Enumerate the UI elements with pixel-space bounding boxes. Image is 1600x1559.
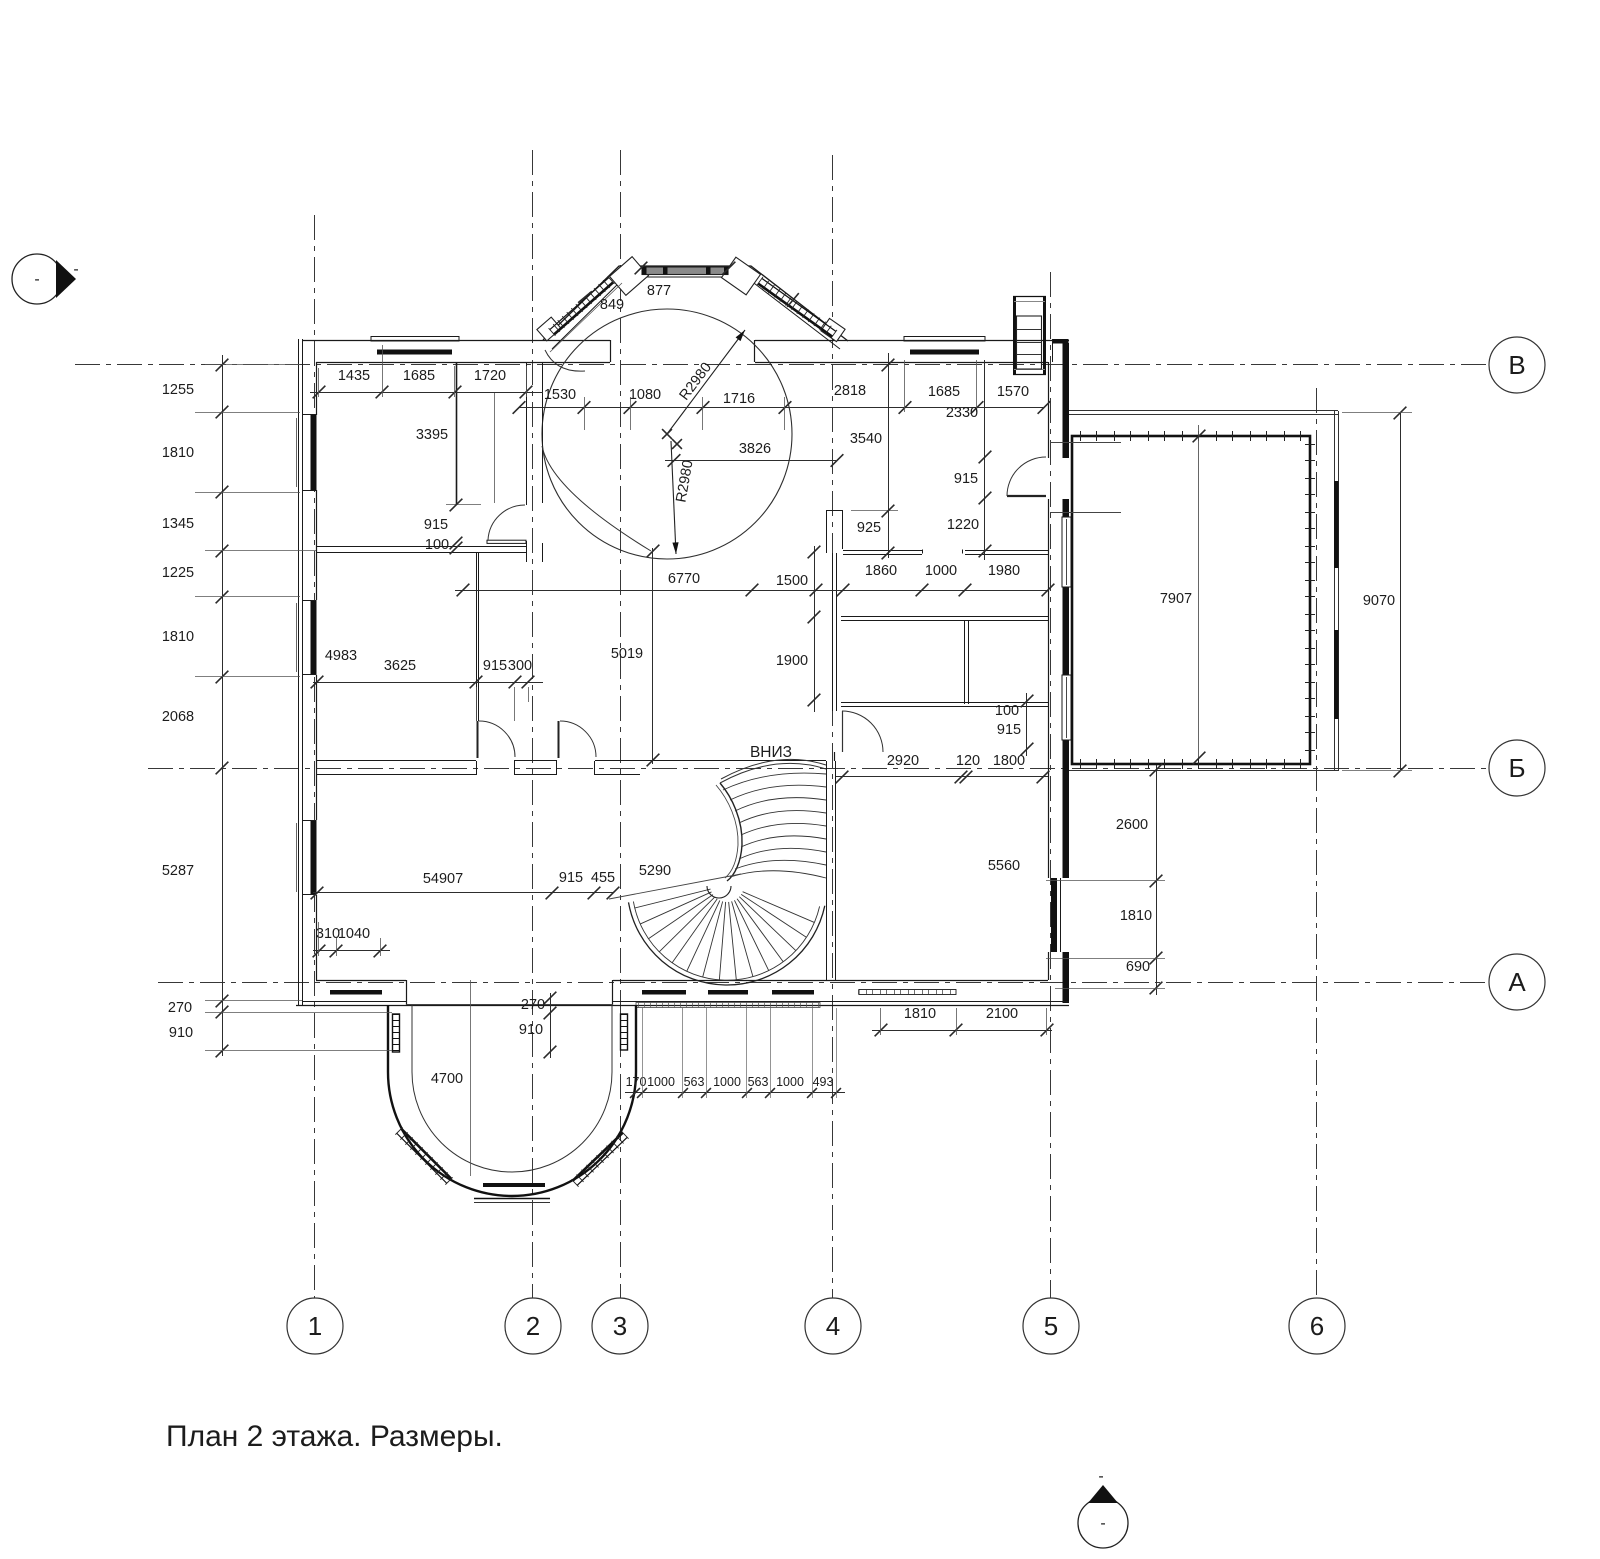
- svg-text:170: 170: [626, 1075, 647, 1089]
- svg-text:План 2 этажа. Размеры.: План 2 этажа. Размеры.: [166, 1420, 503, 1453]
- svg-text:849: 849: [600, 297, 624, 313]
- svg-text:1810: 1810: [1120, 908, 1152, 924]
- svg-text:1000: 1000: [925, 563, 957, 579]
- svg-text:1435: 1435: [338, 368, 370, 384]
- svg-text:1810: 1810: [162, 629, 194, 645]
- svg-text:5560: 5560: [988, 858, 1020, 874]
- svg-text:1: 1: [308, 1311, 322, 1341]
- svg-text:4983: 4983: [325, 648, 357, 664]
- svg-text:1810: 1810: [904, 1006, 936, 1022]
- svg-text:1080: 1080: [629, 387, 661, 403]
- svg-text:В: В: [1508, 350, 1525, 380]
- svg-text:3540: 3540: [850, 431, 882, 447]
- svg-text:5: 5: [1044, 1311, 1058, 1341]
- svg-text:100: 100: [995, 703, 1019, 719]
- svg-text:1000: 1000: [647, 1075, 675, 1089]
- svg-text:910: 910: [519, 1022, 543, 1038]
- svg-text:54907: 54907: [423, 871, 463, 887]
- svg-text:Б: Б: [1508, 753, 1525, 783]
- svg-text:А: А: [1508, 967, 1526, 997]
- svg-text:2920: 2920: [887, 753, 919, 769]
- svg-text:7907: 7907: [1160, 591, 1192, 607]
- svg-text:3826: 3826: [739, 441, 771, 457]
- svg-text:3: 3: [613, 1311, 627, 1341]
- svg-text:563: 563: [748, 1075, 769, 1089]
- svg-text:1860: 1860: [865, 563, 897, 579]
- svg-text:4700: 4700: [431, 1071, 463, 1087]
- svg-text:877: 877: [647, 283, 671, 299]
- svg-text:3625: 3625: [384, 658, 416, 674]
- svg-text:1716: 1716: [723, 391, 755, 407]
- svg-text:-: -: [1098, 1468, 1103, 1485]
- svg-text:1685: 1685: [928, 384, 960, 400]
- svg-text:1720: 1720: [474, 368, 506, 384]
- svg-text:5290: 5290: [639, 863, 671, 879]
- svg-text:3395: 3395: [416, 427, 448, 443]
- svg-text:915: 915: [954, 471, 978, 487]
- svg-text:563: 563: [684, 1075, 705, 1089]
- svg-text:1500: 1500: [776, 573, 808, 589]
- svg-text:915: 915: [424, 517, 448, 533]
- svg-text:-: -: [1100, 1515, 1105, 1532]
- svg-text:2068: 2068: [162, 709, 194, 725]
- svg-text:1570: 1570: [997, 384, 1029, 400]
- svg-text:1000: 1000: [713, 1075, 741, 1089]
- svg-text:1530: 1530: [544, 387, 576, 403]
- svg-text:4: 4: [826, 1311, 840, 1341]
- svg-text:6: 6: [1310, 1311, 1324, 1341]
- svg-text:915: 915: [997, 722, 1021, 738]
- svg-text:1000: 1000: [776, 1075, 804, 1089]
- svg-text:2818: 2818: [834, 383, 866, 399]
- svg-text:270: 270: [521, 997, 545, 1013]
- svg-text:1225: 1225: [162, 565, 194, 581]
- svg-text:2330: 2330: [946, 405, 978, 421]
- svg-text:ВНИЗ: ВНИЗ: [750, 744, 792, 761]
- svg-text:270: 270: [168, 1000, 192, 1016]
- svg-text:1800: 1800: [993, 753, 1025, 769]
- svg-text:300: 300: [508, 658, 532, 674]
- svg-text:1685: 1685: [403, 368, 435, 384]
- svg-text:1345: 1345: [162, 516, 194, 532]
- svg-text:1810: 1810: [162, 445, 194, 461]
- svg-text:120: 120: [956, 753, 980, 769]
- svg-text:5287: 5287: [162, 863, 194, 879]
- svg-text:455: 455: [591, 870, 615, 886]
- svg-text:925: 925: [857, 520, 881, 536]
- svg-text:2100: 2100: [986, 1006, 1018, 1022]
- svg-text:-: -: [34, 271, 39, 288]
- svg-text:2: 2: [526, 1311, 540, 1341]
- svg-text:1220: 1220: [947, 517, 979, 533]
- svg-text:910: 910: [169, 1025, 193, 1041]
- svg-text:915: 915: [559, 870, 583, 886]
- svg-text:1255: 1255: [162, 382, 194, 398]
- svg-text:6770: 6770: [668, 571, 700, 587]
- svg-text:493: 493: [813, 1075, 834, 1089]
- svg-text:690: 690: [1126, 959, 1150, 975]
- svg-text:1900: 1900: [776, 653, 808, 669]
- svg-text:1980: 1980: [988, 563, 1020, 579]
- svg-text:2600: 2600: [1116, 817, 1148, 833]
- svg-text:1040: 1040: [338, 926, 370, 942]
- svg-text:-: -: [73, 261, 78, 278]
- svg-text:9070: 9070: [1363, 593, 1395, 609]
- svg-text:100: 100: [425, 537, 449, 553]
- svg-text:5019: 5019: [611, 646, 643, 662]
- svg-text:915: 915: [483, 658, 507, 674]
